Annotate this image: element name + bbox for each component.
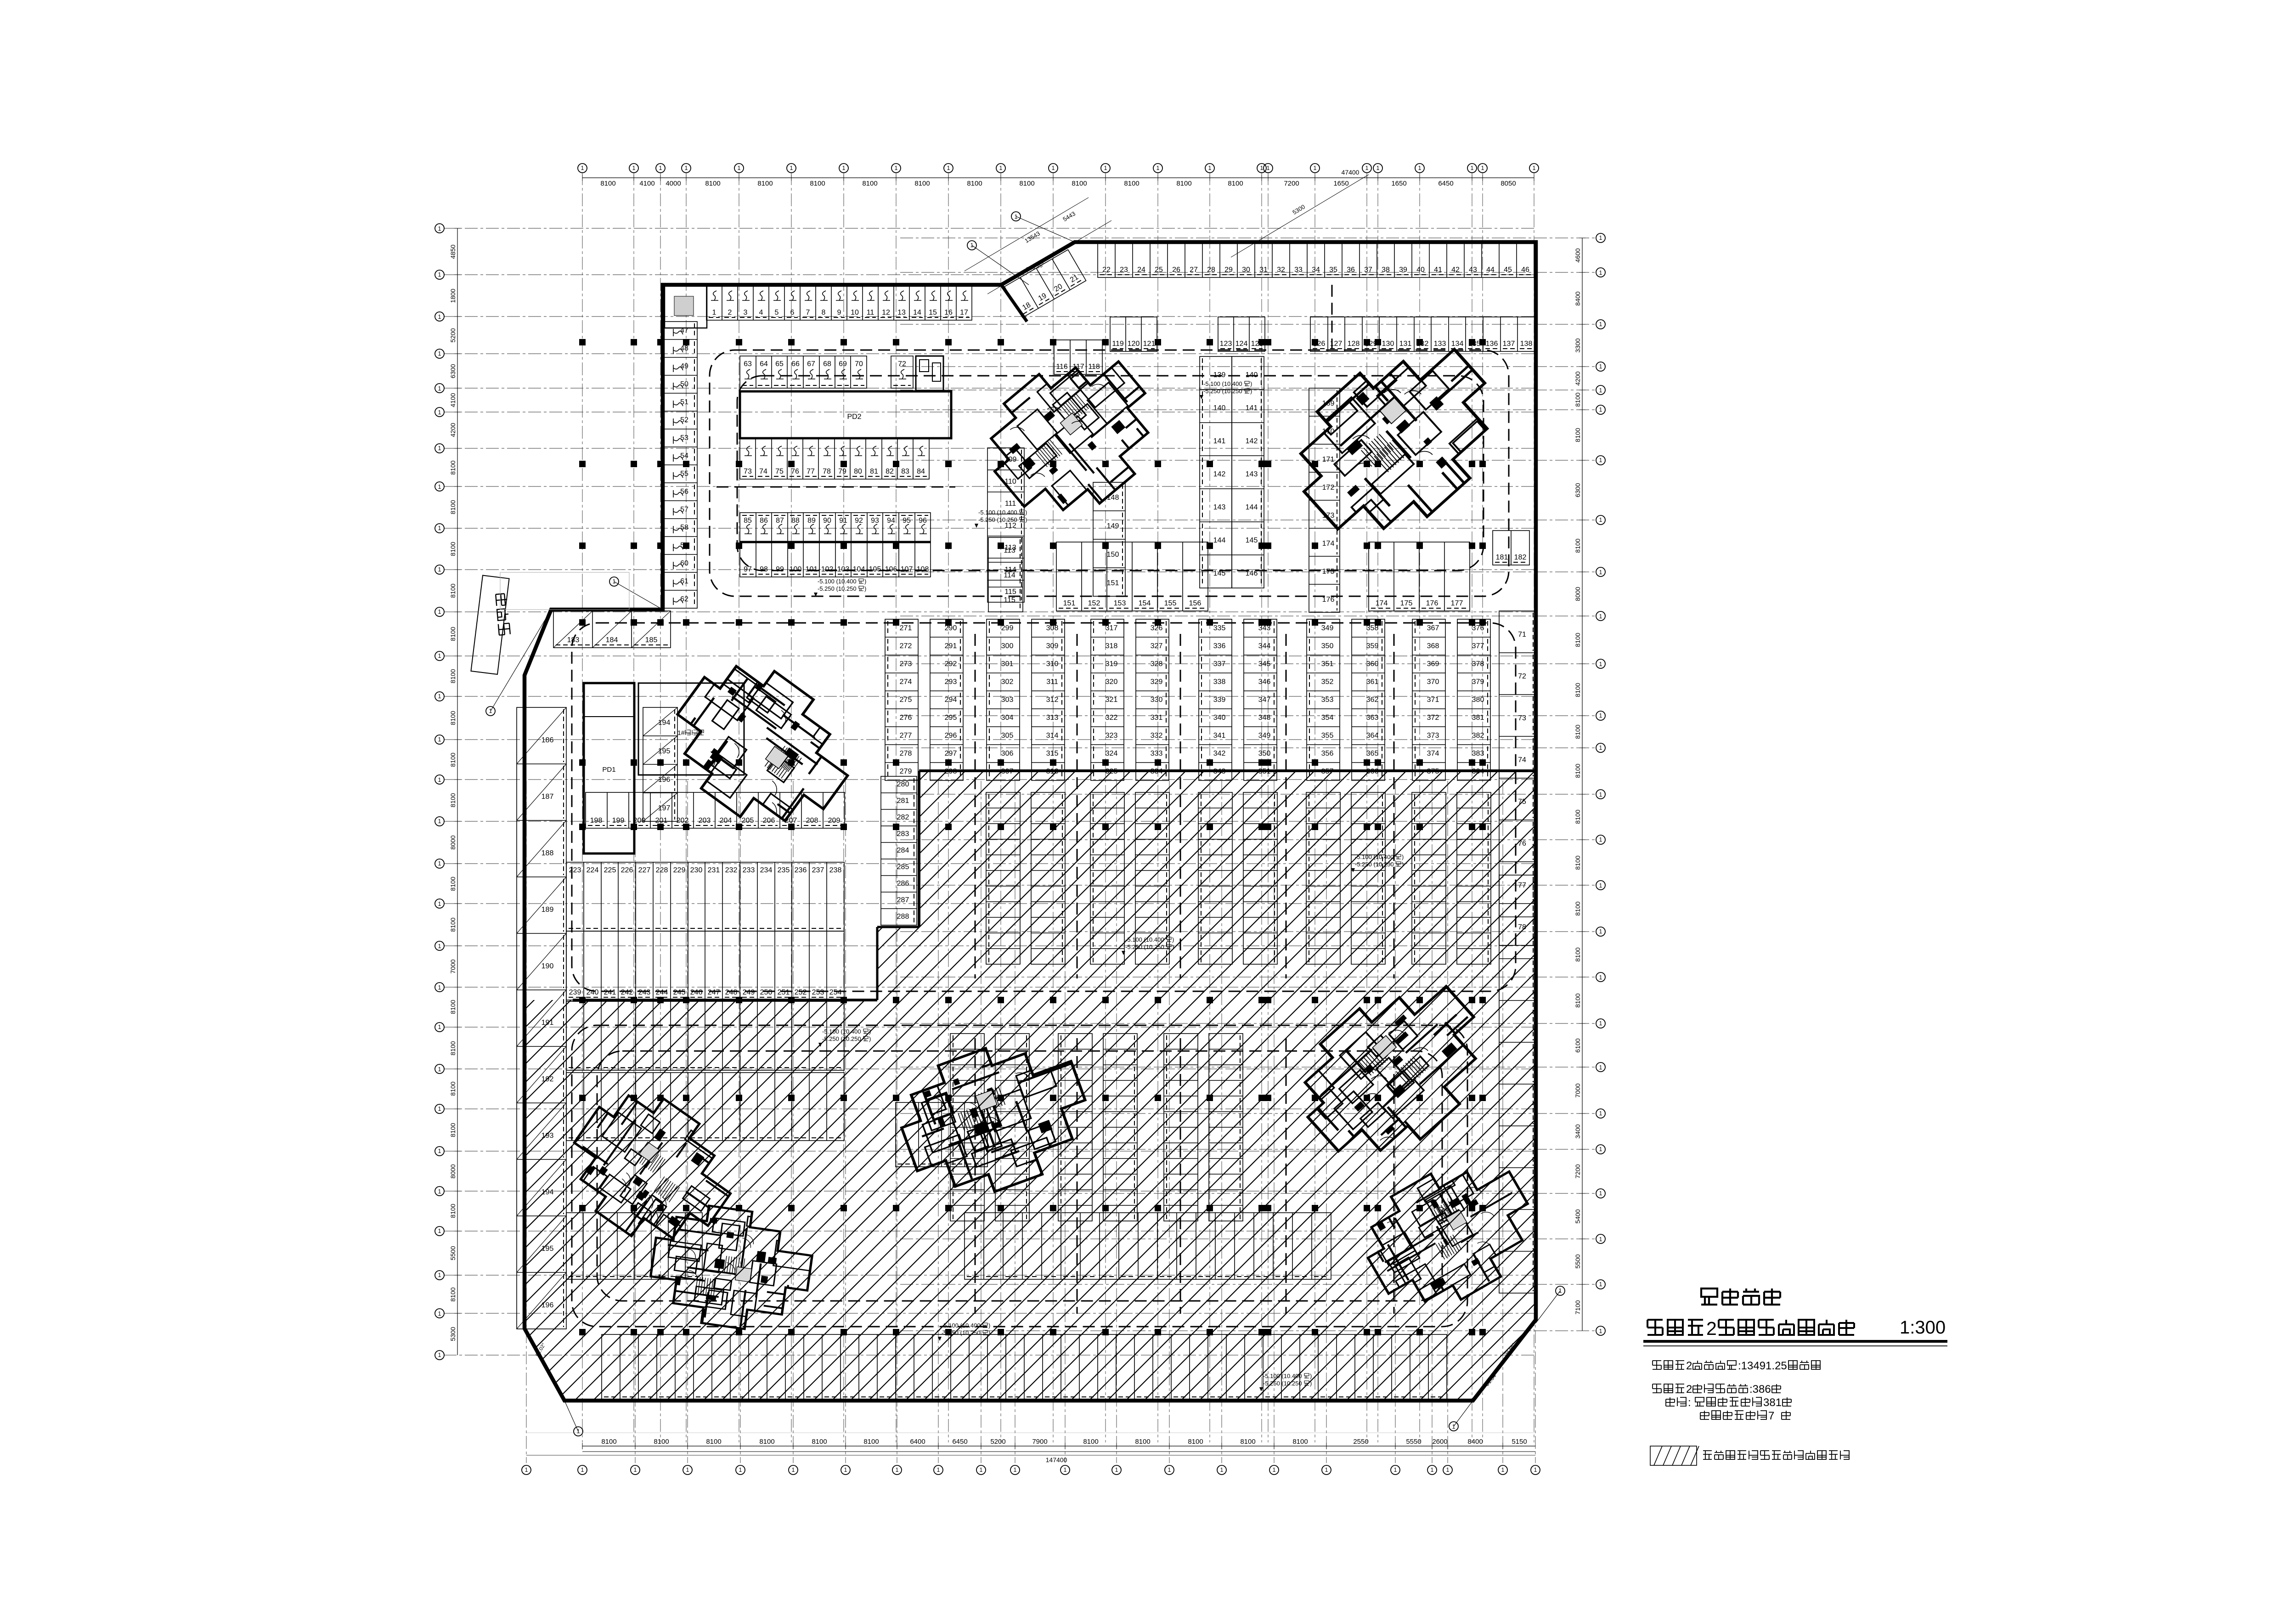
svg-text:183: 183 [567, 636, 580, 644]
svg-text:105: 105 [869, 565, 881, 573]
svg-text:362: 362 [1366, 696, 1379, 704]
svg-text:8100: 8100 [1072, 180, 1087, 187]
svg-text::386: :386 [1749, 1383, 1771, 1396]
svg-text:208: 208 [806, 817, 818, 825]
svg-text:209: 209 [828, 817, 841, 825]
svg-text:1: 1 [1501, 1467, 1505, 1473]
svg-text:1: 1 [438, 1228, 441, 1234]
svg-text:174: 174 [1376, 599, 1388, 607]
svg-text:-5.250 (10.250: -5.250 (10.250 [1263, 1380, 1302, 1387]
svg-text:1: 1 [1156, 165, 1160, 171]
svg-text:80: 80 [854, 468, 862, 475]
svg-text:119: 119 [1112, 340, 1124, 348]
svg-text:1: 1 [613, 578, 616, 585]
svg-text:306: 306 [1001, 750, 1014, 757]
svg-text:284: 284 [897, 847, 909, 854]
svg-text:1: 1 [1534, 1467, 1537, 1473]
svg-text:1: 1 [438, 525, 441, 531]
svg-text:6300: 6300 [1574, 483, 1581, 497]
svg-text:120: 120 [1128, 340, 1140, 348]
svg-text:86: 86 [760, 517, 768, 525]
svg-text:1: 1 [1014, 1467, 1017, 1473]
svg-text:8100: 8100 [600, 180, 615, 187]
svg-text:7: 7 [806, 309, 810, 316]
svg-text:320: 320 [1106, 678, 1118, 686]
svg-text:123: 123 [1220, 340, 1232, 348]
svg-text:): ) [988, 1329, 990, 1336]
svg-text:-5.100 (10.400: -5.100 (10.400 [942, 1322, 981, 1329]
svg-text:90: 90 [823, 517, 831, 525]
svg-text:237: 237 [812, 866, 824, 874]
svg-text:55: 55 [680, 470, 688, 478]
svg-text:143: 143 [1213, 503, 1226, 511]
svg-text:8100: 8100 [449, 917, 457, 932]
svg-text:8400: 8400 [1574, 291, 1581, 305]
svg-text:67: 67 [807, 360, 815, 368]
svg-text:176: 176 [1322, 596, 1335, 604]
svg-text:233: 233 [743, 866, 755, 874]
svg-text:238: 238 [829, 866, 842, 874]
svg-text:89: 89 [807, 517, 816, 525]
svg-text:187: 187 [542, 793, 554, 801]
svg-text:144: 144 [1246, 503, 1258, 511]
svg-text:305: 305 [1001, 732, 1014, 740]
svg-text:367: 367 [1427, 624, 1439, 632]
svg-text:38: 38 [1382, 266, 1390, 274]
svg-text:1: 1 [1599, 1064, 1602, 1071]
svg-text:138: 138 [1520, 340, 1533, 348]
svg-text:8100: 8100 [449, 669, 457, 683]
svg-text:380: 380 [1472, 696, 1484, 704]
svg-text:): ) [1172, 944, 1174, 950]
svg-text:8100: 8100 [1176, 180, 1191, 187]
svg-text:245: 245 [673, 989, 686, 996]
svg-text:324: 324 [1106, 750, 1118, 757]
svg-text:1: 1 [1220, 1467, 1224, 1473]
svg-text:24: 24 [1137, 266, 1145, 274]
svg-text:1: 1 [1273, 1467, 1276, 1473]
svg-text:239: 239 [569, 989, 581, 996]
svg-text:296: 296 [945, 732, 957, 740]
svg-text:225: 225 [604, 866, 616, 874]
svg-text:32: 32 [1277, 266, 1285, 274]
svg-text:295: 295 [945, 714, 957, 722]
svg-text:232: 232 [725, 866, 738, 874]
svg-text:1: 1 [1599, 928, 1602, 935]
svg-text:8100: 8100 [1574, 633, 1581, 647]
svg-text:-5.250 (10.250: -5.250 (10.250 [818, 585, 857, 592]
svg-text:8100: 8100 [449, 1123, 457, 1137]
svg-text:236: 236 [795, 866, 807, 874]
svg-text:194: 194 [542, 1188, 554, 1196]
svg-text:23: 23 [1120, 266, 1128, 274]
svg-text:8100: 8100 [1574, 855, 1581, 870]
svg-text:25: 25 [1155, 266, 1163, 274]
svg-text:287: 287 [897, 896, 909, 904]
svg-text:8100: 8100 [706, 1438, 721, 1446]
svg-text:374: 374 [1427, 750, 1439, 757]
svg-text:8100: 8100 [914, 180, 930, 187]
svg-text:1: 1 [438, 271, 441, 278]
svg-text:4850: 4850 [449, 244, 457, 259]
svg-text:144: 144 [1213, 537, 1226, 544]
svg-text:368: 368 [1427, 642, 1439, 650]
svg-text:1: 1 [438, 1106, 441, 1112]
svg-text:27: 27 [1190, 266, 1198, 274]
svg-text:-5.250 (10.250: -5.250 (10.250 [1203, 388, 1242, 395]
svg-text:1: 1 [1599, 882, 1602, 889]
svg-text:352: 352 [1321, 678, 1334, 686]
svg-text:253: 253 [812, 989, 824, 996]
svg-text:45: 45 [1504, 266, 1512, 274]
svg-text:152: 152 [1088, 599, 1100, 607]
svg-text:1: 1 [1452, 1424, 1455, 1430]
svg-text:185: 185 [645, 636, 658, 644]
svg-text:56: 56 [680, 488, 688, 496]
svg-text:8100: 8100 [1574, 809, 1581, 824]
svg-text:234: 234 [760, 866, 773, 874]
svg-text:102: 102 [821, 565, 834, 573]
svg-text:1: 1 [844, 1467, 847, 1473]
svg-text:1: 1 [1481, 165, 1484, 171]
svg-text:146: 146 [1246, 570, 1258, 577]
svg-text:79: 79 [838, 468, 846, 475]
svg-text:272: 272 [900, 642, 912, 650]
svg-text:98: 98 [760, 565, 768, 573]
svg-text:1: 1 [1599, 387, 1602, 394]
svg-text:282: 282 [897, 814, 909, 821]
svg-text:1: 1 [438, 484, 441, 490]
svg-text:371: 371 [1427, 696, 1439, 704]
svg-text:293: 293 [945, 678, 957, 686]
svg-text:128: 128 [1348, 340, 1360, 348]
svg-text:87: 87 [776, 517, 784, 525]
svg-text:-5.100 (10.400: -5.100 (10.400 [1125, 936, 1164, 943]
svg-text:356: 356 [1321, 750, 1334, 757]
svg-text:341: 341 [1213, 732, 1226, 740]
svg-text:7900: 7900 [1032, 1438, 1047, 1446]
svg-text:1: 1 [1446, 1467, 1450, 1473]
svg-text:8100: 8100 [1574, 947, 1581, 961]
svg-text:1: 1 [738, 165, 741, 171]
svg-text:1: 1 [438, 609, 441, 615]
svg-text:5400: 5400 [1574, 1209, 1581, 1223]
svg-text:204: 204 [720, 817, 732, 825]
svg-text:303: 303 [1001, 696, 1014, 704]
svg-text:8100: 8100 [449, 793, 457, 807]
svg-text:1: 1 [1052, 165, 1055, 171]
svg-text:174: 174 [1322, 540, 1335, 548]
svg-text:8100: 8100 [1019, 180, 1034, 187]
svg-text:44: 44 [1486, 266, 1495, 274]
svg-text:8100: 8100 [1574, 724, 1581, 739]
svg-text:1: 1 [1599, 745, 1602, 751]
svg-text:6100: 6100 [1574, 1038, 1581, 1052]
svg-text:242: 242 [621, 989, 633, 996]
svg-text:69: 69 [839, 360, 847, 368]
svg-text:-5.100 (10.400: -5.100 (10.400 [978, 509, 1017, 516]
svg-text:4200: 4200 [1574, 371, 1581, 385]
svg-text:273: 273 [900, 660, 912, 668]
svg-text:177: 177 [1451, 599, 1463, 607]
svg-text:330: 330 [1151, 696, 1163, 704]
svg-text:252: 252 [795, 989, 807, 996]
svg-text:1: 1 [1599, 517, 1602, 523]
svg-text:8000: 8000 [1574, 587, 1581, 601]
svg-text:1: 1 [438, 1311, 441, 1317]
svg-text:49: 49 [680, 362, 688, 370]
svg-text:92: 92 [855, 517, 863, 525]
svg-text:1: 1 [489, 708, 492, 714]
svg-text:74: 74 [759, 468, 767, 475]
svg-text:1: 1 [1599, 1020, 1602, 1027]
svg-text:1: 1 [438, 860, 441, 867]
svg-text:8100: 8100 [449, 711, 457, 725]
svg-text:131: 131 [1399, 340, 1412, 348]
svg-text:PD2: PD2 [847, 413, 861, 421]
svg-text:77: 77 [1518, 882, 1526, 889]
svg-text:8100: 8100 [862, 180, 877, 187]
svg-text:1:300: 1:300 [1900, 1317, 1946, 1338]
svg-text:16: 16 [944, 309, 953, 316]
svg-text:5300: 5300 [449, 1327, 457, 1341]
svg-text:6: 6 [790, 309, 795, 316]
svg-text:280: 280 [897, 780, 909, 788]
svg-text:7200: 7200 [1574, 1164, 1581, 1178]
svg-text:): ) [1402, 853, 1404, 860]
svg-text:8100: 8100 [601, 1438, 616, 1446]
svg-text:1: 1 [1064, 1467, 1067, 1473]
svg-text:58: 58 [680, 524, 688, 531]
svg-text:230: 230 [690, 866, 703, 874]
svg-text:8100: 8100 [449, 627, 457, 641]
svg-text:): ) [1025, 516, 1027, 523]
svg-text:1: 1 [1599, 974, 1602, 981]
svg-text:331: 331 [1151, 714, 1163, 722]
svg-text:1: 1 [1599, 712, 1602, 719]
svg-text:2600: 2600 [1432, 1438, 1447, 1446]
svg-text:291: 291 [945, 642, 957, 650]
svg-text:285: 285 [897, 863, 909, 871]
svg-text:60: 60 [680, 560, 688, 567]
svg-text:-5.100 (10.400: -5.100 (10.400 [1203, 380, 1242, 387]
svg-text:34: 34 [1312, 266, 1320, 274]
svg-text:350: 350 [1321, 642, 1334, 650]
svg-text:383: 383 [1472, 750, 1484, 757]
svg-text:2: 2 [1686, 1383, 1692, 1396]
svg-text:101: 101 [806, 565, 818, 573]
svg-text:100: 100 [790, 565, 802, 573]
svg-text:-5.250 (10.250: -5.250 (10.250 [1355, 861, 1394, 868]
svg-text:189: 189 [542, 906, 554, 914]
svg-text:33: 33 [1294, 266, 1303, 274]
svg-text:): ) [1310, 1380, 1312, 1387]
svg-text:175: 175 [1400, 599, 1413, 607]
svg-text:8100: 8100 [449, 1204, 457, 1218]
svg-text:1: 1 [1471, 165, 1474, 171]
svg-text:319: 319 [1106, 660, 1118, 668]
svg-text:40: 40 [1416, 266, 1425, 274]
svg-text:91: 91 [839, 517, 847, 525]
svg-text:47400: 47400 [1342, 169, 1360, 176]
svg-text:360: 360 [1366, 660, 1379, 668]
svg-text:1: 1 [1599, 1190, 1602, 1197]
svg-text:39: 39 [1399, 266, 1407, 274]
svg-text:241: 241 [604, 989, 616, 996]
svg-text:175: 175 [1322, 568, 1335, 576]
svg-text:8100: 8100 [1292, 1438, 1308, 1446]
svg-text:76: 76 [1518, 840, 1526, 848]
svg-text:4600: 4600 [1574, 248, 1581, 262]
svg-text:5550: 5550 [1406, 1438, 1421, 1446]
svg-text:1: 1 [438, 901, 441, 907]
svg-text:50: 50 [680, 380, 688, 388]
svg-text:1: 1 [1599, 661, 1602, 667]
svg-text:8100: 8100 [1574, 993, 1581, 1007]
svg-text:37: 37 [1364, 266, 1372, 274]
svg-text:379: 379 [1472, 678, 1484, 686]
svg-text:1: 1 [1599, 363, 1602, 370]
svg-text:8000: 8000 [449, 1164, 457, 1178]
svg-text:198: 198 [590, 817, 603, 825]
svg-text:6450: 6450 [1438, 180, 1453, 187]
svg-text:1: 1 [1599, 1110, 1602, 1117]
svg-text:-5.250 (10.250: -5.250 (10.250 [942, 1329, 981, 1336]
svg-text:249: 249 [743, 989, 755, 996]
svg-text:8100: 8100 [449, 752, 457, 767]
svg-text:115: 115 [1004, 588, 1016, 596]
svg-text:): ) [988, 1322, 990, 1329]
svg-text:8100: 8100 [757, 180, 773, 187]
svg-text:78: 78 [823, 468, 831, 475]
svg-text:8100: 8100 [449, 1287, 457, 1301]
svg-text:1: 1 [686, 1467, 689, 1473]
svg-text:): ) [1025, 509, 1027, 516]
svg-text:322: 322 [1106, 714, 1118, 722]
svg-text:63: 63 [744, 360, 752, 368]
svg-text:142: 142 [1213, 470, 1226, 478]
svg-text:188: 188 [542, 849, 554, 857]
svg-text:47: 47 [680, 327, 688, 334]
svg-text:335: 335 [1213, 624, 1226, 632]
svg-text:1: 1 [1208, 165, 1212, 171]
svg-text:-5.250 (10.250: -5.250 (10.250 [1125, 944, 1164, 950]
svg-text:372: 372 [1427, 714, 1439, 722]
svg-text:1: 1 [438, 1148, 441, 1154]
svg-text:226: 226 [621, 866, 633, 874]
svg-text:72: 72 [898, 360, 906, 368]
svg-text:1: 1 [438, 350, 441, 357]
svg-text:31: 31 [1259, 266, 1268, 274]
svg-text:72: 72 [1518, 673, 1526, 680]
svg-text:346: 346 [1258, 678, 1271, 686]
svg-text:42: 42 [1451, 266, 1460, 274]
svg-text:381: 381 [1472, 714, 1484, 722]
svg-text:1: 1 [980, 1467, 983, 1473]
svg-text:94: 94 [887, 517, 895, 525]
svg-text:1: 1 [790, 165, 793, 171]
svg-text:8: 8 [822, 309, 826, 316]
svg-text:7: 7 [1768, 1410, 1774, 1422]
svg-text:8100: 8100 [863, 1438, 879, 1446]
svg-text:283: 283 [897, 830, 909, 838]
svg-text:1: 1 [438, 566, 441, 573]
svg-text:195: 195 [658, 747, 671, 755]
svg-text:274: 274 [900, 678, 912, 686]
svg-text:310: 310 [1046, 660, 1059, 668]
svg-text:8100: 8100 [1240, 1438, 1255, 1446]
svg-text:): ) [869, 1028, 871, 1035]
svg-text:53: 53 [680, 434, 688, 442]
svg-text:355: 355 [1321, 732, 1334, 740]
svg-text:1: 1 [895, 165, 898, 171]
svg-text:4: 4 [759, 309, 763, 316]
svg-text:-5.100 (10.400: -5.100 (10.400 [822, 1028, 861, 1035]
svg-text:127: 127 [1330, 340, 1343, 348]
svg-text:1: 1 [1599, 613, 1602, 620]
svg-text:301: 301 [1001, 660, 1014, 668]
svg-text:1: 1 [438, 314, 441, 320]
svg-text:51: 51 [680, 398, 688, 406]
svg-text:347: 347 [1258, 696, 1271, 704]
svg-text:81: 81 [870, 468, 878, 475]
svg-text:2: 2 [1706, 1318, 1717, 1339]
svg-text:4100: 4100 [449, 393, 457, 407]
svg-text:153: 153 [1114, 599, 1126, 607]
svg-text:3: 3 [744, 309, 748, 316]
svg-text:8100: 8100 [812, 1438, 827, 1446]
svg-text:136: 136 [1486, 340, 1498, 348]
svg-text:8100: 8100 [1083, 1438, 1098, 1446]
svg-text:1: 1 [1365, 165, 1369, 171]
svg-text:1800: 1800 [449, 288, 457, 303]
svg-text:1: 1 [1599, 1146, 1602, 1153]
svg-text:7000: 7000 [1574, 1083, 1581, 1097]
svg-text:77: 77 [807, 468, 815, 475]
svg-text:1: 1 [792, 1467, 795, 1473]
svg-text:2: 2 [728, 309, 732, 316]
svg-text:3400: 3400 [1574, 1124, 1581, 1138]
svg-text:-5.250 (10.250: -5.250 (10.250 [822, 1035, 861, 1042]
svg-text:337: 337 [1213, 660, 1226, 668]
svg-text:240: 240 [587, 989, 599, 996]
svg-text:8100: 8100 [705, 180, 720, 187]
svg-text:1: 1 [438, 1024, 441, 1030]
svg-text:2: 2 [1686, 1360, 1692, 1372]
svg-text:246: 246 [690, 989, 703, 996]
svg-text:348: 348 [1258, 714, 1271, 722]
svg-text:54: 54 [680, 452, 688, 460]
svg-text:8100: 8100 [449, 460, 457, 475]
svg-text:149: 149 [1107, 522, 1119, 530]
svg-text:1: 1 [739, 1467, 742, 1473]
svg-text:369: 369 [1427, 660, 1439, 668]
svg-text:1: 1 [438, 693, 441, 700]
svg-text:1: 1 [999, 165, 1003, 171]
svg-text:8100: 8100 [810, 180, 825, 187]
svg-text:142: 142 [1246, 437, 1258, 445]
svg-text:): ) [864, 585, 866, 592]
svg-text:8100: 8100 [449, 1041, 457, 1055]
svg-text:1: 1 [1599, 791, 1602, 798]
svg-text:344: 344 [1258, 642, 1271, 650]
svg-text:250: 250 [760, 989, 773, 996]
svg-text:1#: 1# [677, 729, 685, 736]
svg-text:8100: 8100 [654, 1438, 669, 1446]
svg-text:35: 35 [1329, 266, 1337, 274]
svg-text:288: 288 [897, 913, 909, 921]
svg-text:365: 365 [1366, 750, 1379, 757]
